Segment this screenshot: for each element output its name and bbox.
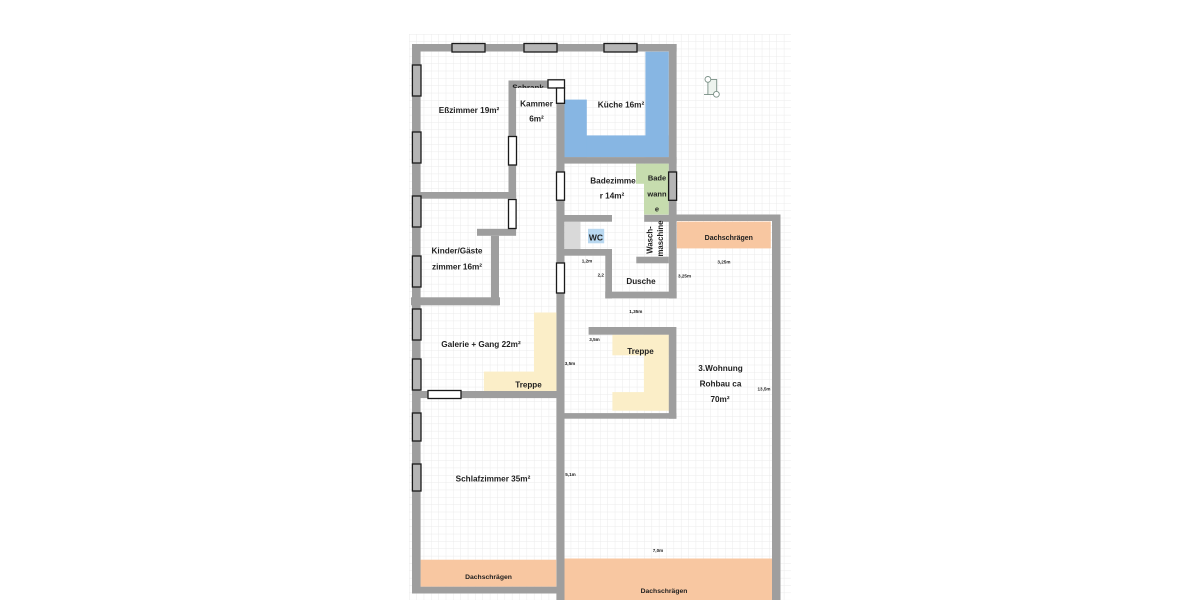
svg-text:1,2m: 1,2m xyxy=(582,259,592,264)
svg-text:70m²: 70m² xyxy=(710,395,729,404)
svg-text:Wasch-: Wasch- xyxy=(646,226,655,254)
svg-text:maschine: maschine xyxy=(656,220,665,257)
svg-text:1,35m: 1,35m xyxy=(629,309,642,314)
svg-text:Galerie + Gang 22m²: Galerie + Gang 22m² xyxy=(441,340,521,349)
svg-text:Schlafzimmer 35m²: Schlafzimmer 35m² xyxy=(456,475,531,484)
svg-text:Dachschrägen: Dachschrägen xyxy=(705,235,753,242)
svg-text:zimmer 16m²: zimmer 16m² xyxy=(432,263,482,272)
svg-text:Treppe: Treppe xyxy=(627,347,654,356)
svg-text:3,25m: 3,25m xyxy=(678,274,691,279)
svg-text:Bade: Bade xyxy=(648,173,666,182)
svg-text:3.Wohnung: 3.Wohnung xyxy=(698,364,742,373)
svg-text:Küche 16m²: Küche 16m² xyxy=(598,101,645,110)
svg-text:3,5m: 3,5m xyxy=(589,337,599,342)
svg-text:7,0m: 7,0m xyxy=(653,548,663,553)
svg-text:Treppe: Treppe xyxy=(515,381,542,390)
svg-text:WC: WC xyxy=(589,233,603,243)
svg-text:Kammer: Kammer xyxy=(520,100,554,109)
svg-text:Dachschrägen: Dachschrägen xyxy=(641,588,688,595)
svg-text:Kinder/Gäste: Kinder/Gäste xyxy=(432,247,483,256)
svg-text:e: e xyxy=(655,205,659,214)
svg-text:Dusche: Dusche xyxy=(626,277,656,286)
svg-text:Rohbau ca: Rohbau ca xyxy=(700,380,742,389)
svg-text:2,2: 2,2 xyxy=(598,273,605,278)
svg-text:Dachschrägen: Dachschrägen xyxy=(465,574,512,581)
svg-text:wann: wann xyxy=(646,190,667,199)
svg-text:3,25m: 3,25m xyxy=(717,260,730,265)
svg-text:Eßzimmer 19m²: Eßzimmer 19m² xyxy=(439,106,500,115)
svg-text:3,5m: 3,5m xyxy=(565,361,575,366)
svg-text:13,5m: 13,5m xyxy=(757,387,770,392)
svg-text:r 14m²: r 14m² xyxy=(600,192,625,201)
svg-text:Badezimme: Badezimme xyxy=(590,177,636,186)
svg-text:6m²: 6m² xyxy=(529,115,544,124)
svg-text:5,1m: 5,1m xyxy=(565,472,575,477)
